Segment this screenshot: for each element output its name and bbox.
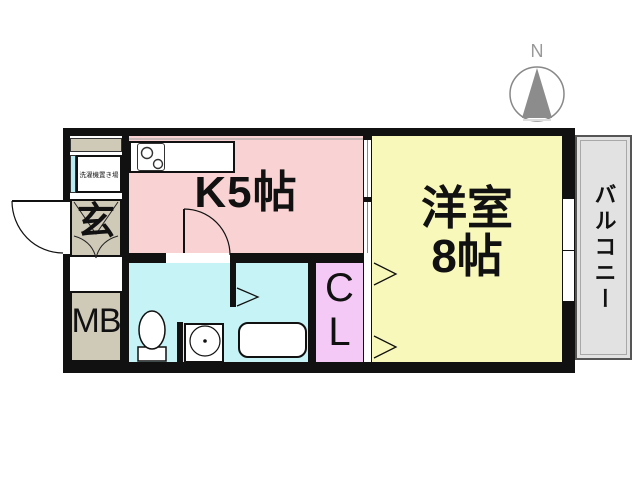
closet-label: C L bbox=[316, 266, 363, 354]
western-room-label-line1: 洋室 bbox=[372, 184, 562, 232]
compass-circle bbox=[510, 67, 564, 121]
balcony-label-wrap: バルコニー bbox=[575, 135, 632, 360]
entrance-label: 玄 bbox=[70, 203, 122, 241]
balcony-label: バルコニー bbox=[588, 183, 620, 313]
meter-box-label: MB bbox=[68, 304, 124, 338]
stove-icon bbox=[137, 143, 165, 171]
north-arrow-icon bbox=[522, 68, 552, 118]
western-room-label: 洋室 8帖 bbox=[372, 184, 562, 281]
closet-label-line2: L bbox=[316, 310, 363, 354]
service-gap bbox=[70, 257, 122, 291]
north-label: N bbox=[510, 42, 564, 60]
shelf-strip bbox=[70, 138, 122, 152]
floor-plan: 洗濯機置き場 bbox=[0, 0, 640, 480]
laundry-box: 洗濯機置き場 bbox=[76, 155, 122, 193]
closet-label-line1: C bbox=[316, 266, 363, 310]
bathroom bbox=[129, 263, 308, 362]
kitchen-label: K5帖 bbox=[129, 171, 363, 215]
entrance-door-arc bbox=[12, 201, 63, 253]
laundry-label: 洗濯機置き場 bbox=[80, 169, 119, 179]
sliding-partition bbox=[363, 136, 372, 362]
western-room-label-line2: 8帖 bbox=[372, 232, 562, 280]
